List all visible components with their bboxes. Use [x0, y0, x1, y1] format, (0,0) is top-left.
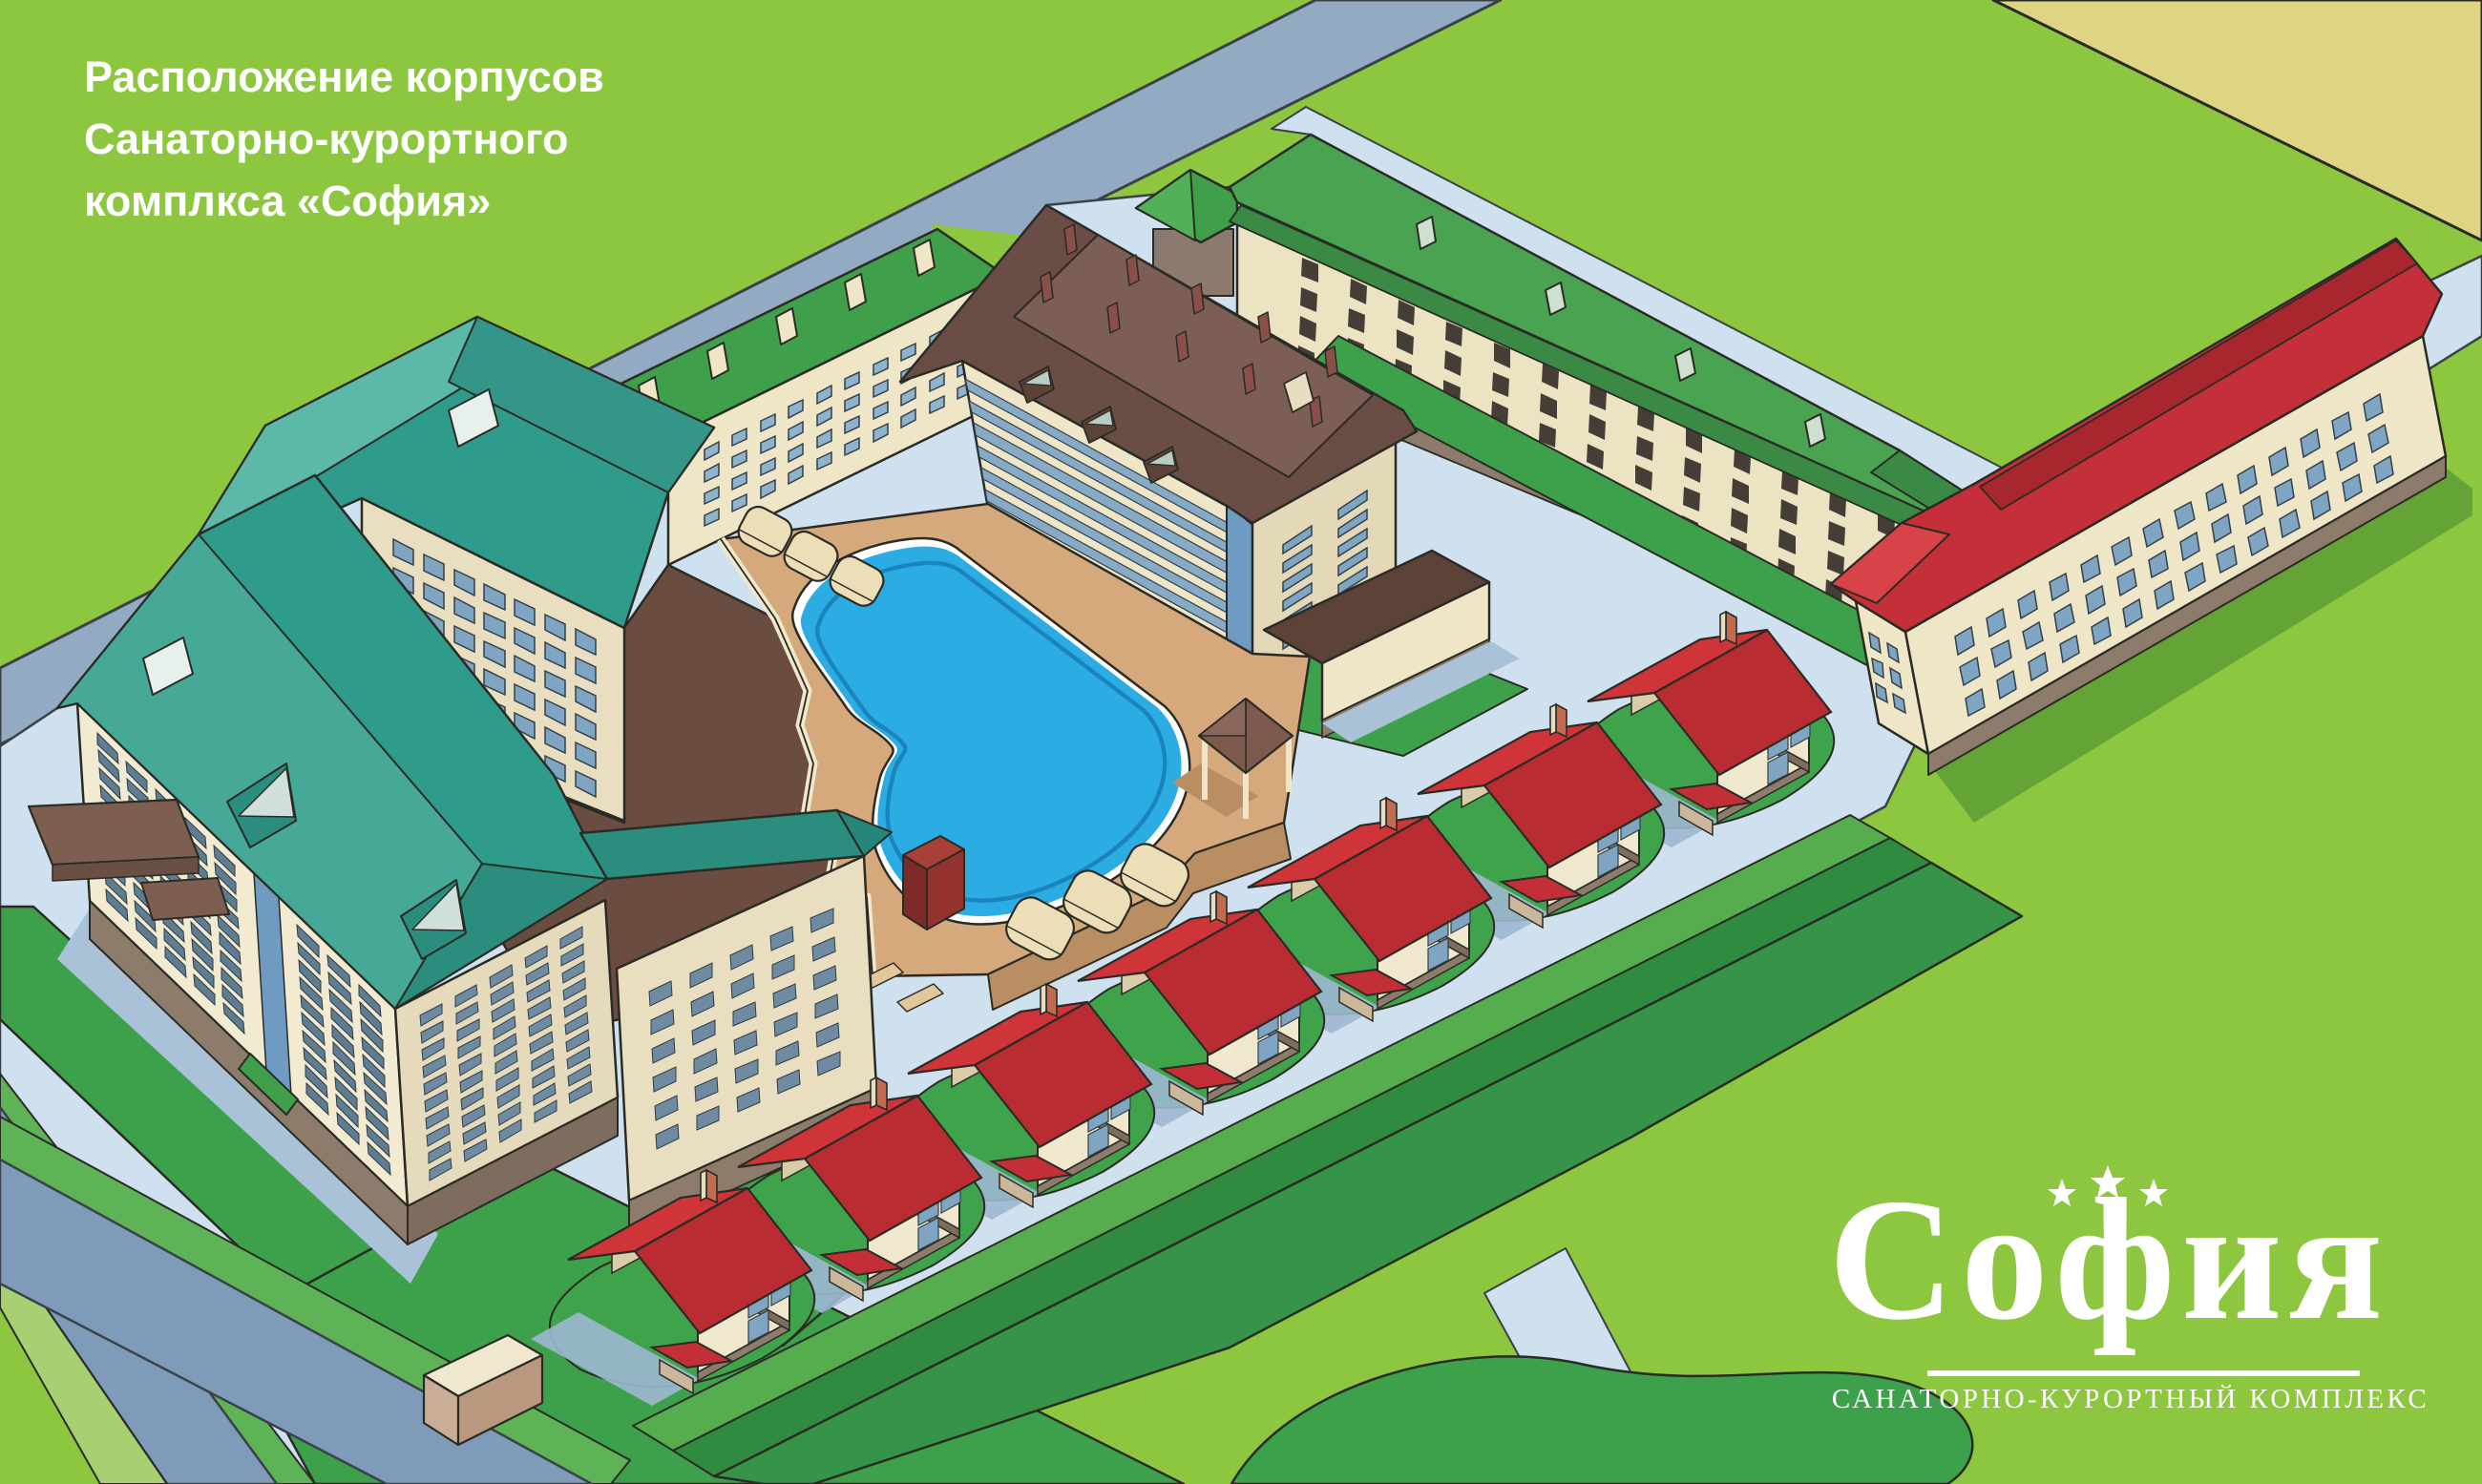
svg-text:комплкса «София»: комплкса «София» [84, 177, 491, 225]
svg-text:Расположение корпусов: Расположение корпусов [84, 52, 604, 101]
svg-text:САНАТОРНО-КУРОРТНЫЙ КОМПЛЕКС: САНАТОРНО-КУРОРТНЫЙ КОМПЛЕКС [1832, 1384, 2429, 1414]
svg-text:София: София [1828, 1162, 2388, 1356]
svg-text:Санаторно-курортного: Санаторно-курортного [84, 115, 569, 163]
